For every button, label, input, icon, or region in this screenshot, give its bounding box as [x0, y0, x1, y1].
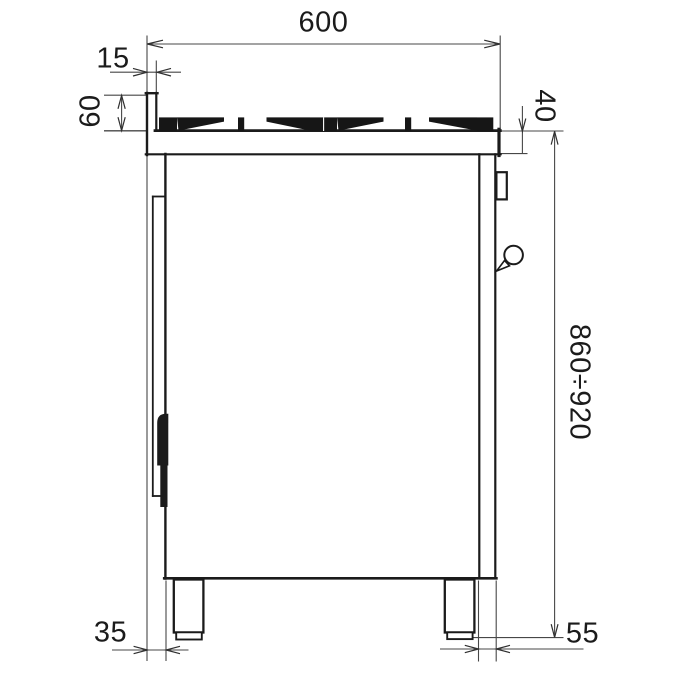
grate-center-bar — [238, 117, 244, 131]
dim-label-bottom-front-clearance: 55 — [566, 620, 599, 649]
left-foot — [176, 632, 202, 639]
dim-label-height-range: 860÷920 — [564, 324, 593, 440]
grate-end-block — [159, 117, 177, 131]
door-handle — [497, 246, 523, 271]
grate-bar-wedge — [337, 117, 384, 130]
right-foot — [447, 632, 472, 639]
grate-bar-wedge — [177, 117, 224, 130]
grate-bar-wedge — [429, 117, 477, 130]
grate-bar-wedge — [267, 117, 311, 130]
dim-label-back-offset: 15 — [96, 45, 129, 74]
grate-end-block — [477, 117, 493, 131]
cooker-side-view-dimension-drawing: 600 15 60 40 860÷920 35 55 — [0, 0, 678, 678]
dim-label-width-top: 600 — [299, 9, 349, 38]
grate-center-bar — [405, 117, 411, 131]
dim-label-bottom-back-clearance: 35 — [94, 619, 127, 648]
gas-connection-fitting — [157, 414, 168, 507]
dimension-arrowheads — [118, 40, 558, 654]
legs — [174, 580, 475, 640]
right-leg — [445, 580, 475, 633]
control-knob — [496, 172, 506, 199]
dim-label-splashback-height: 60 — [76, 94, 105, 127]
cabinet-body — [164, 154, 496, 579]
burner-grates — [159, 117, 493, 131]
dim-label-worktop-thickness: 40 — [530, 89, 559, 122]
left-leg — [174, 580, 204, 633]
handle-knob — [504, 246, 523, 265]
